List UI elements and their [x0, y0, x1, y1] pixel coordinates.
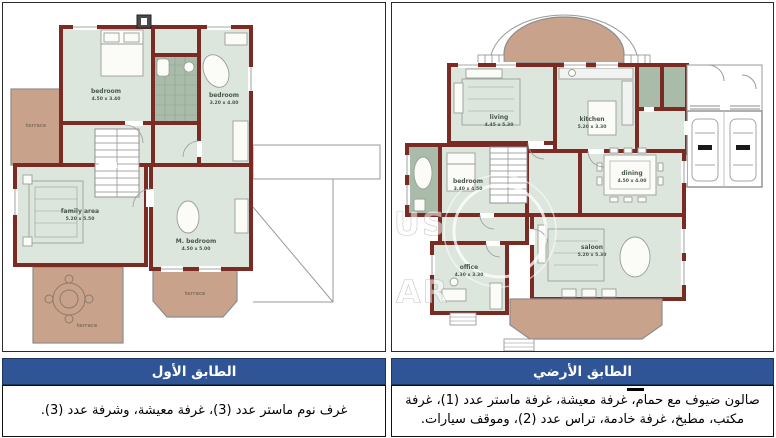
first-floor-description-box: غرف نوم ماستر عدد (3)، غرفة معيشة، وشرفة…: [2, 385, 386, 437]
room-maid: [637, 65, 662, 109]
terrace-bottom-left: [33, 267, 123, 343]
room-label: M. bedroom: [176, 238, 216, 245]
room-guest-bath: [662, 65, 687, 109]
room-label: kitchen: [579, 116, 604, 123]
room-dims: 4.50 x 5.00: [182, 246, 211, 252]
first-floor-plan-box: bedroom 4.50 x 3.40 bedroom 3.20 x 4.80 …: [2, 2, 386, 352]
room-dims: 4.50 x 3.40: [92, 96, 121, 102]
ground-floor-plan-box: US AR living 4.45 x 5.30 kitchen 5.20 x …: [391, 2, 774, 352]
watermark-text: AR: [396, 273, 449, 311]
terrace-label: terrace: [77, 323, 98, 329]
room-label: saloon: [581, 244, 603, 251]
room-dims: 5.20 x 5.30: [578, 252, 607, 258]
watermark-text: US: [394, 205, 447, 243]
room-dims: 5.20 x 3.30: [578, 124, 607, 130]
car-2: [730, 119, 756, 181]
room-dims: 5.20 x 5.50: [66, 216, 95, 222]
master-bed: [177, 201, 199, 233]
terrace-label: terrace: [185, 291, 206, 297]
chimney: [137, 15, 151, 28]
room-label: bedroom: [91, 88, 121, 95]
room-corridor: [637, 109, 687, 153]
car-1: [692, 119, 718, 181]
room-dims: 4.45 x 5.30: [485, 122, 514, 128]
first-floor-panel: bedroom 4.50 x 3.40 bedroom 3.20 x 4.80 …: [2, 2, 386, 437]
room-label: family area: [61, 208, 99, 215]
room-saloon: [532, 215, 684, 299]
underline-mark: [627, 388, 644, 391]
saloon-table: [620, 237, 650, 277]
first-floor-description: غرف نوم ماستر عدد (3)، غرفة معيشة، وشرفة…: [41, 402, 347, 421]
entrance-porch: [687, 65, 762, 111]
ground-floor-description-box: صالون ضيوف مع حمام، غرفة معيشة، غرفة ماس…: [391, 385, 774, 437]
bathtub: [414, 157, 432, 189]
wardrobe: [233, 121, 248, 161]
terrace-bottom: [510, 299, 662, 339]
room-label: bedroom: [209, 92, 239, 99]
office-chair: [450, 278, 458, 286]
room-dims: 3.20 x 4.80: [210, 100, 239, 106]
room-dims: 3.40 x 4.50: [454, 186, 483, 192]
room-label: living: [490, 114, 509, 121]
ground-floor-plan-drawing: US AR living 4.45 x 5.30 kitchen 5.20 x …: [392, 3, 773, 351]
room-hall: [527, 151, 580, 215]
ground-floor-panel: US AR living 4.45 x 5.30 kitchen 5.20 x …: [391, 2, 774, 437]
room-closet: [153, 27, 199, 55]
first-floor-title: الطابق الأول: [152, 364, 237, 380]
ground-floor-title: الطابق الأرضي: [533, 364, 632, 380]
room-label: office: [460, 264, 478, 271]
garage: [687, 106, 762, 187]
entrance-arch: [478, 15, 650, 64]
room-corridor: [153, 123, 199, 165]
first-floor-plan-drawing: bedroom 4.50 x 3.40 bedroom 3.20 x 4.80 …: [3, 3, 385, 351]
room-label: dining: [621, 170, 642, 177]
room-label: bedroom: [453, 178, 483, 185]
first-floor-header: الطابق الأول: [2, 358, 386, 385]
roof-outline: [253, 145, 380, 302]
ground-floor-description: صالون ضيوف مع حمام، غرفة معيشة، غرفة ماس…: [402, 392, 763, 430]
ground-floor-header: الطابق الأرضي: [391, 358, 774, 385]
terrace-label: terrace: [26, 123, 47, 129]
room-dims: 4.50 x 4.00: [618, 178, 647, 184]
bed: [447, 153, 475, 191]
room-dims: 4.30 x 3.30: [455, 272, 484, 278]
document-page: bedroom 4.50 x 3.40 bedroom 3.20 x 4.80 …: [0, 0, 776, 438]
